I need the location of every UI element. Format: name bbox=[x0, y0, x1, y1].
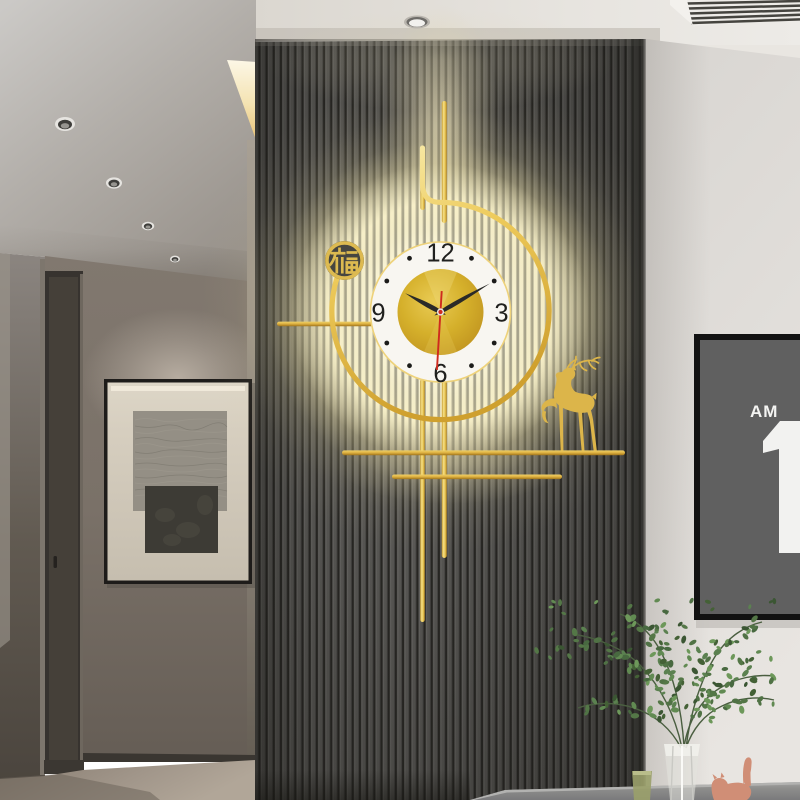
svg-text:9: 9 bbox=[371, 300, 385, 328]
svg-text:12: 12 bbox=[426, 240, 454, 268]
svg-text:AM: AM bbox=[750, 402, 778, 421]
svg-text:6: 6 bbox=[433, 360, 447, 388]
svg-text:3: 3 bbox=[494, 300, 508, 328]
